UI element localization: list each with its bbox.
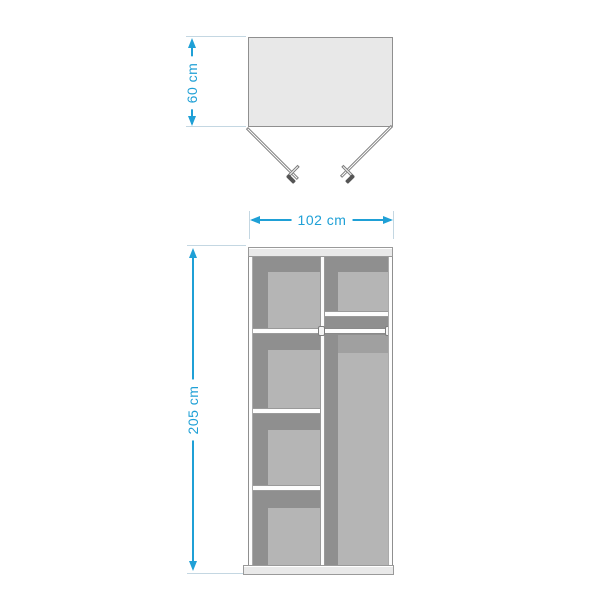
base-panel <box>243 565 394 575</box>
arrow-down-icon <box>189 561 197 571</box>
wardrobe-top-outline <box>248 37 393 127</box>
extension-line <box>187 573 243 574</box>
width-dimension-label: 102 cm <box>292 211 353 229</box>
extension-line <box>186 36 246 37</box>
left-wall <box>248 257 253 565</box>
arrow-up-icon <box>189 248 197 258</box>
front-view: 102 cm 205 cm <box>0 200 600 600</box>
back-panel <box>338 272 388 311</box>
arrow-right-icon <box>383 216 393 224</box>
wardrobe-dimension-diagram: 60 cm 102 cm 205 cm <box>0 0 600 600</box>
right-door-handle-grip <box>345 174 355 184</box>
interior <box>248 257 393 565</box>
shelf <box>325 311 388 317</box>
top-panel <box>248 247 393 257</box>
arrow-down-icon <box>188 116 196 126</box>
center-divider <box>320 257 325 565</box>
arrow-left-icon <box>250 216 260 224</box>
right-wall <box>388 257 393 565</box>
back-panel <box>268 272 320 328</box>
shelf <box>253 328 320 334</box>
hanging-space-shade <box>338 335 388 353</box>
arrow-up-icon <box>188 38 196 48</box>
extension-line <box>186 126 246 127</box>
back-panel <box>268 508 320 565</box>
back-panel <box>268 430 320 485</box>
rail-end-cap <box>318 326 325 336</box>
clothes-rail <box>321 328 389 334</box>
back-panel <box>268 350 320 408</box>
wardrobe-front <box>248 247 393 575</box>
hanging-space-back-panel <box>338 353 388 565</box>
depth-dimension-label: 60 cm <box>183 57 201 110</box>
height-dimension-label: 205 cm <box>184 380 202 441</box>
shelf <box>253 408 320 414</box>
top-view: 60 cm <box>0 0 600 200</box>
extension-line <box>393 211 394 239</box>
shelf <box>253 485 320 491</box>
extension-line <box>187 245 246 246</box>
